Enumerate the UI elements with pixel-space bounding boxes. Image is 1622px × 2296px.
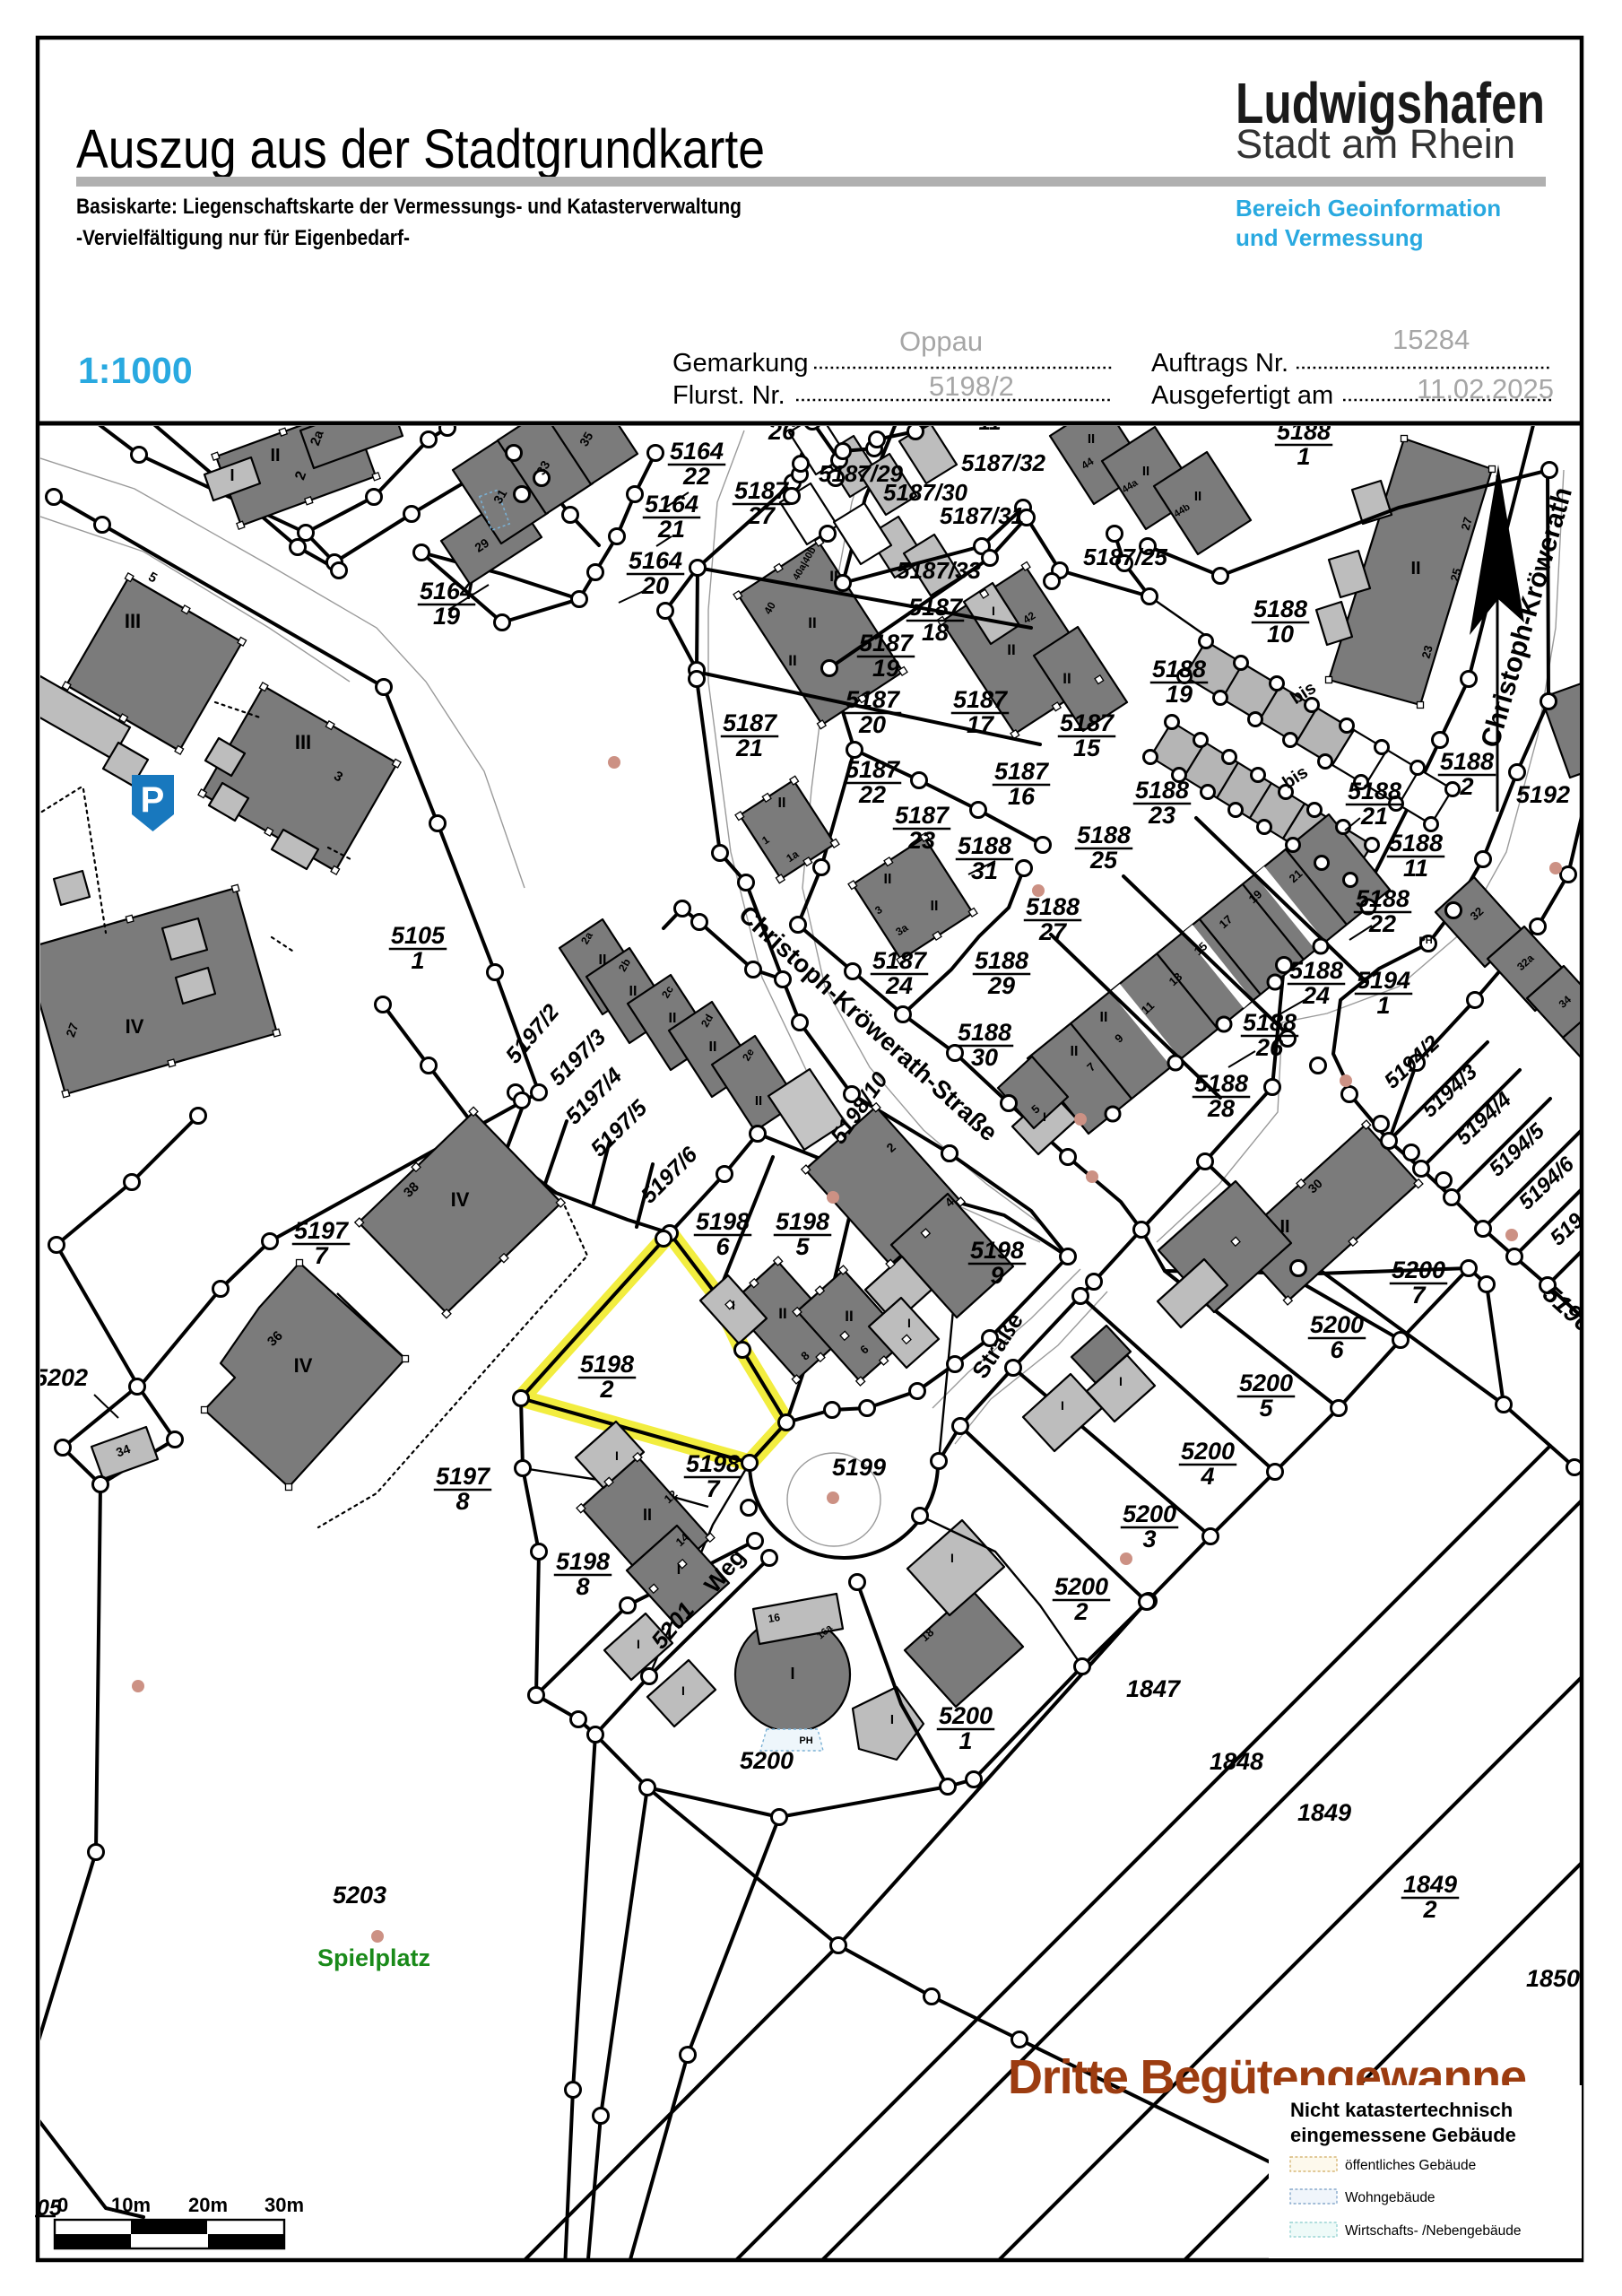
svg-text:28: 28 <box>1207 1095 1235 1122</box>
svg-text:5: 5 <box>795 1233 810 1260</box>
svg-text:II: II <box>1088 431 1095 447</box>
svg-text:5203: 5203 <box>333 1882 386 1909</box>
svg-text:II: II <box>1100 1010 1108 1025</box>
svg-text:5188: 5188 <box>1389 830 1443 857</box>
svg-text:22: 22 <box>858 781 886 808</box>
svg-text:P: P <box>141 780 165 820</box>
svg-text:II: II <box>931 899 939 914</box>
svg-text:1849: 1849 <box>1403 1871 1457 1898</box>
svg-text:I: I <box>890 1712 894 1727</box>
svg-text:I: I <box>681 1683 685 1698</box>
svg-text:Flurst. Nr.: Flurst. Nr. <box>672 381 785 410</box>
svg-text:Oppau: Oppau <box>899 326 983 357</box>
svg-text:9: 9 <box>990 1262 1003 1289</box>
svg-text:5188: 5188 <box>975 947 1028 974</box>
svg-text:5188: 5188 <box>1026 893 1080 920</box>
svg-text:II: II <box>1007 641 1015 658</box>
svg-text:19: 19 <box>1166 681 1193 708</box>
svg-text:5198: 5198 <box>580 1351 634 1378</box>
svg-text:2: 2 <box>1073 1598 1088 1625</box>
svg-text:5188: 5188 <box>1135 777 1189 804</box>
svg-text:10m: 10m <box>111 2194 151 2216</box>
svg-text:5198: 5198 <box>556 1548 610 1575</box>
svg-text:II: II <box>788 652 796 669</box>
svg-text:II: II <box>1279 1217 1289 1237</box>
svg-text:5197: 5197 <box>294 1217 350 1244</box>
svg-text:2: 2 <box>599 1376 613 1403</box>
svg-text:5188: 5188 <box>1077 822 1131 848</box>
svg-text:IV: IV <box>294 1354 313 1377</box>
svg-text:2: 2 <box>1422 1896 1436 1923</box>
svg-text:1848: 1848 <box>1210 1748 1263 1775</box>
svg-text:5188: 5188 <box>1348 778 1401 804</box>
svg-text:2: 2 <box>1459 773 1473 800</box>
svg-text:5187: 5187 <box>723 709 778 736</box>
svg-text:0: 0 <box>57 2194 68 2216</box>
svg-text:7: 7 <box>1411 1282 1427 1309</box>
svg-text:21: 21 <box>1360 803 1388 830</box>
svg-text:Basiskarte: Liegenschaftskarte: Basiskarte: Liegenschaftskarte der Verme… <box>76 195 742 219</box>
svg-text:5200: 5200 <box>1181 1438 1235 1465</box>
svg-text:5187/33: 5187/33 <box>897 557 982 584</box>
svg-text:Auszug aus der Stadtgrundkarte: Auszug aus der Stadtgrundkarte <box>76 118 765 179</box>
svg-text:8: 8 <box>455 1488 469 1515</box>
svg-text:I: I <box>907 1316 911 1330</box>
svg-text:29: 29 <box>987 972 1015 999</box>
svg-text:5164: 5164 <box>629 547 682 574</box>
svg-text:1847: 1847 <box>1126 1675 1182 1702</box>
svg-text:II: II <box>1142 464 1149 479</box>
svg-text:5200: 5200 <box>939 1702 993 1729</box>
svg-text:5200: 5200 <box>1239 1370 1293 1396</box>
svg-text:II: II <box>1194 489 1201 504</box>
svg-text:6: 6 <box>1330 1336 1344 1363</box>
svg-text:21: 21 <box>657 516 685 543</box>
svg-text:5187: 5187 <box>908 594 964 621</box>
svg-text:5200: 5200 <box>1123 1500 1176 1527</box>
svg-text:21: 21 <box>735 735 763 761</box>
svg-text:5188: 5188 <box>1194 1070 1248 1097</box>
svg-text:5188: 5188 <box>1440 748 1494 775</box>
svg-text:19: 19 <box>433 603 460 630</box>
svg-text:III: III <box>295 731 311 753</box>
svg-text:I: I <box>790 1665 794 1683</box>
svg-text:5192: 5192 <box>1516 781 1570 808</box>
svg-text:II: II <box>808 614 816 631</box>
svg-text:19: 19 <box>872 655 899 682</box>
svg-text:15284: 15284 <box>1392 324 1470 355</box>
svg-text:IV: IV <box>451 1188 470 1211</box>
svg-text:Nicht katastertechnisch: Nicht katastertechnisch <box>1290 2099 1513 2121</box>
svg-text:5200: 5200 <box>1054 1573 1108 1600</box>
svg-text:5200: 5200 <box>740 1747 794 1774</box>
svg-text:23: 23 <box>1148 802 1175 829</box>
svg-text:1: 1 <box>958 1727 972 1754</box>
svg-text:5105: 5105 <box>391 922 446 949</box>
svg-text:5187: 5187 <box>859 630 915 657</box>
svg-text:27: 27 <box>747 502 776 529</box>
svg-text:25: 25 <box>1089 847 1118 874</box>
svg-text:22: 22 <box>1368 910 1396 937</box>
svg-text:Spielplatz: Spielplatz <box>317 1944 430 1971</box>
svg-text:20m: 20m <box>188 2194 228 2216</box>
svg-text:5198: 5198 <box>696 1208 750 1235</box>
svg-text:-Vervielfältigung nur für Eige: -Vervielfältigung nur für Eigenbedarf- <box>76 226 410 250</box>
svg-text:II: II <box>1063 670 1071 687</box>
svg-text:7: 7 <box>314 1242 329 1269</box>
svg-text:Ausgefertigt am: Ausgefertigt am <box>1151 381 1333 410</box>
svg-text:I: I <box>615 1448 619 1463</box>
svg-text:5188: 5188 <box>958 1019 1011 1046</box>
svg-text:5187/25: 5187/25 <box>1083 544 1168 570</box>
svg-text:I: I <box>637 1637 640 1651</box>
svg-text:11: 11 <box>1403 855 1428 882</box>
svg-text:17: 17 <box>967 711 995 738</box>
svg-text:5198/2: 5198/2 <box>929 370 1014 402</box>
svg-text:1: 1 <box>1376 992 1390 1019</box>
svg-text:III: III <box>125 610 141 632</box>
svg-text:5194: 5194 <box>1357 967 1410 994</box>
svg-text:1850: 1850 <box>1526 1965 1580 1992</box>
svg-text:5188: 5188 <box>1356 885 1409 912</box>
svg-text:Auftrags Nr.: Auftrags Nr. <box>1151 349 1288 378</box>
svg-text:5188: 5188 <box>1243 1009 1297 1036</box>
svg-text:5187: 5187 <box>994 758 1050 785</box>
svg-text:I: I <box>992 604 995 618</box>
svg-text:II: II <box>643 1506 652 1524</box>
svg-text:I: I <box>732 1298 735 1312</box>
svg-text:I: I <box>230 466 234 484</box>
svg-text:1: 1 <box>411 947 424 974</box>
svg-text:5187: 5187 <box>895 802 950 829</box>
svg-text:3: 3 <box>1142 1526 1156 1552</box>
svg-text:I: I <box>1119 1374 1123 1388</box>
svg-text:Bereich Geoinformation: Bereich Geoinformation <box>1236 195 1501 222</box>
svg-text:7: 7 <box>706 1475 721 1502</box>
svg-text:II: II <box>884 872 892 887</box>
svg-text:1:1000: 1:1000 <box>78 350 193 391</box>
svg-text:II: II <box>1410 559 1420 578</box>
svg-text:5187: 5187 <box>1060 709 1115 736</box>
svg-text:20: 20 <box>858 711 886 738</box>
svg-text:II: II <box>669 1011 677 1026</box>
svg-text:II: II <box>709 1039 717 1055</box>
svg-text:I: I <box>677 1562 681 1578</box>
svg-text:5188: 5188 <box>1253 596 1307 622</box>
svg-text:11.02.2025: 11.02.2025 <box>1417 373 1554 404</box>
svg-text:II: II <box>778 796 786 811</box>
svg-text:5187: 5187 <box>953 686 1009 713</box>
svg-text:6: 6 <box>716 1233 730 1260</box>
svg-text:10: 10 <box>1267 621 1294 648</box>
svg-text:26: 26 <box>1255 1034 1284 1061</box>
svg-text:5164: 5164 <box>670 438 724 465</box>
svg-text:öffentliches Gebäude: öffentliches Gebäude <box>1345 2158 1476 2173</box>
svg-text:II: II <box>845 1308 853 1325</box>
svg-text:24: 24 <box>1302 982 1330 1009</box>
svg-text:II: II <box>599 952 607 968</box>
svg-text:Stadt am Rhein: Stadt am Rhein <box>1236 121 1515 167</box>
svg-text:5198: 5198 <box>776 1208 829 1235</box>
svg-text:II: II <box>755 1093 762 1109</box>
svg-text:5202: 5202 <box>34 1364 88 1391</box>
svg-text:5187/32: 5187/32 <box>961 449 1046 476</box>
svg-text:8: 8 <box>576 1573 589 1600</box>
svg-text:II: II <box>1071 1044 1079 1059</box>
svg-text:5188: 5188 <box>1289 957 1343 984</box>
svg-text:18: 18 <box>922 619 949 646</box>
svg-text:5: 5 <box>1259 1395 1273 1422</box>
svg-text:5187: 5187 <box>734 477 790 504</box>
svg-text:5188: 5188 <box>958 832 1011 859</box>
svg-text:II: II <box>829 568 837 585</box>
svg-text:5198: 5198 <box>970 1237 1024 1264</box>
svg-text:5187: 5187 <box>846 756 901 783</box>
svg-text:eingemessene Gebäude: eingemessene Gebäude <box>1290 2124 1516 2146</box>
svg-text:IV: IV <box>126 1015 144 1038</box>
svg-text:5199: 5199 <box>832 1454 886 1481</box>
svg-text:5200: 5200 <box>1310 1311 1364 1338</box>
svg-text:und Vermessung: und Vermessung <box>1236 224 1424 251</box>
svg-text:II: II <box>778 1305 786 1322</box>
svg-text:5198: 5198 <box>686 1450 740 1477</box>
svg-text:5197: 5197 <box>436 1463 491 1490</box>
svg-text:4: 4 <box>1200 1463 1214 1490</box>
svg-text:5187/31: 5187/31 <box>940 502 1024 529</box>
svg-text:PH: PH <box>1418 935 1432 946</box>
svg-text:5187: 5187 <box>846 686 901 713</box>
svg-text:24: 24 <box>885 972 913 999</box>
svg-text:II: II <box>270 446 280 465</box>
svg-text:22: 22 <box>682 463 710 490</box>
svg-text:Wohngebäude: Wohngebäude <box>1345 2190 1436 2205</box>
svg-text:I: I <box>950 1551 954 1565</box>
svg-text:1: 1 <box>1297 443 1310 470</box>
svg-text:20: 20 <box>641 572 669 599</box>
svg-text:30m: 30m <box>265 2194 304 2216</box>
svg-text:15: 15 <box>1073 735 1101 761</box>
svg-text:16: 16 <box>1008 783 1036 810</box>
svg-text:5188: 5188 <box>1152 656 1206 683</box>
svg-text:PH: PH <box>799 1735 812 1746</box>
svg-text:I: I <box>1043 1109 1046 1124</box>
svg-text:Wirtschafts- /Nebengebäude: Wirtschafts- /Nebengebäude <box>1345 2223 1521 2239</box>
svg-text:I: I <box>1061 1398 1064 1413</box>
svg-text:II: II <box>629 984 638 999</box>
svg-text:1849: 1849 <box>1297 1799 1351 1826</box>
svg-text:23: 23 <box>907 827 935 854</box>
svg-text:5200: 5200 <box>1392 1257 1445 1283</box>
svg-text:5187: 5187 <box>872 947 928 974</box>
svg-text:30: 30 <box>971 1044 998 1071</box>
svg-text:16: 16 <box>768 1611 782 1625</box>
svg-text:27: 27 <box>1038 918 1068 945</box>
svg-text:5164: 5164 <box>420 578 473 604</box>
svg-text:Gemarkung: Gemarkung <box>672 349 809 378</box>
